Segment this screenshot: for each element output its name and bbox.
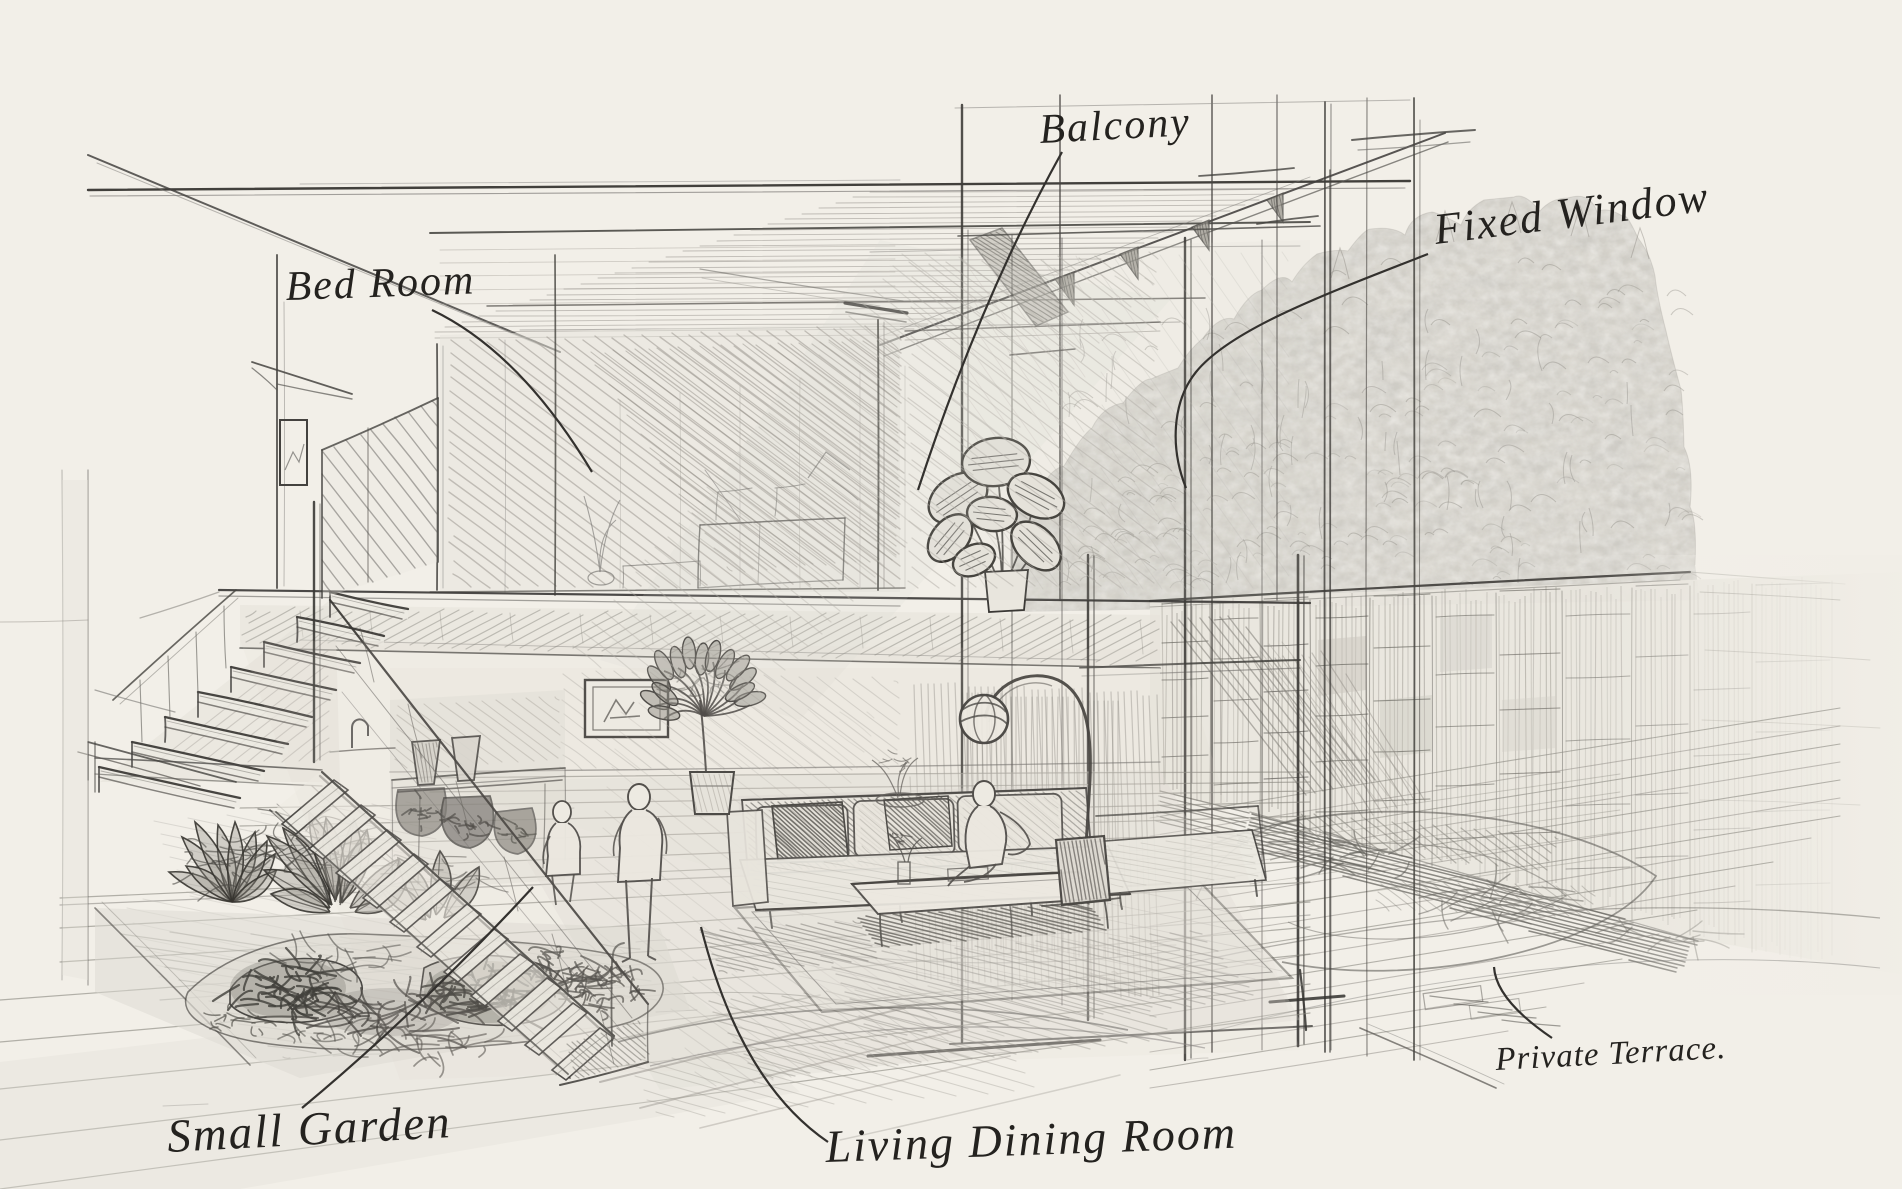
svg-text:Bed Room: Bed Room — [285, 257, 476, 310]
svg-text:Balcony: Balcony — [1038, 99, 1192, 153]
